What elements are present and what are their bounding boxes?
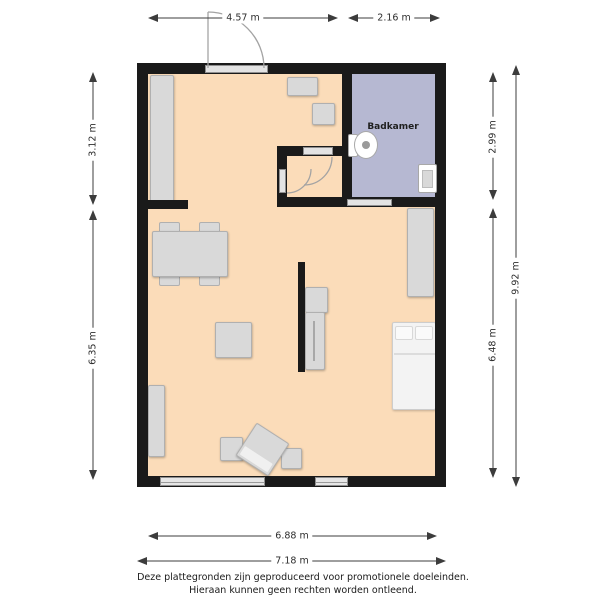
dim-label-left-lower: 6.35 m — [88, 327, 99, 368]
kitchen-unit-handle — [313, 321, 315, 361]
cabinet-small-1 — [287, 77, 318, 96]
dim-label-bottom-inner: 6.88 m — [271, 531, 312, 542]
vestibule-top-door-threshold — [303, 147, 333, 155]
dim-label-top-right: 2.16 m — [373, 13, 414, 24]
vestibule-left-door-threshold — [279, 169, 286, 193]
cabinet-left-wall — [148, 385, 165, 457]
dim-label-right-total: 9.92 m — [511, 257, 522, 298]
bathroom-label: Badkamer — [367, 122, 418, 132]
window-bottom-small — [315, 477, 348, 486]
wall-top — [137, 63, 446, 74]
disclaimer-line-2: Hieraan kunnen geen rechten worden ontle… — [0, 585, 606, 596]
pillow-right — [415, 326, 433, 340]
bed — [392, 322, 436, 410]
wall-stub-left — [137, 200, 188, 209]
closet-top-left — [150, 75, 174, 202]
wall-left — [137, 63, 148, 487]
dim-label-right-upper: 2.99 m — [488, 116, 499, 157]
bathroom-door-threshold — [347, 199, 392, 206]
blanket-edge — [394, 353, 435, 355]
dim-label-top-left: 4.57 m — [222, 13, 263, 24]
toilet-icon — [362, 141, 370, 149]
kitchen-unit-column — [305, 312, 325, 370]
bathroom-radiator — [418, 164, 437, 193]
wall-right — [435, 63, 446, 487]
pillow-left — [395, 326, 413, 340]
wardrobe-right-wall — [407, 208, 434, 297]
dim-label-right-lower: 6.48 m — [488, 324, 499, 365]
side-table — [215, 322, 252, 358]
dim-label-left-upper: 3.12 m — [88, 119, 99, 160]
cabinet-small-2 — [312, 103, 335, 125]
floorplan-page: Badkamer 4.57 m 2.16 m 3.12 m 6.35 m 2.9… — [0, 0, 606, 606]
disclaimer-line-1: Deze plattegronden zijn geproduceerd voo… — [0, 572, 606, 583]
dim-label-bottom-outer: 7.18 m — [271, 556, 312, 567]
kitchen-unit-top — [305, 287, 328, 313]
dining-table — [152, 231, 228, 277]
wall-partition-center — [298, 262, 305, 372]
bathroom-radiator-inner — [422, 170, 433, 188]
window-bottom-large — [160, 477, 265, 486]
entry-door-threshold — [205, 65, 268, 73]
